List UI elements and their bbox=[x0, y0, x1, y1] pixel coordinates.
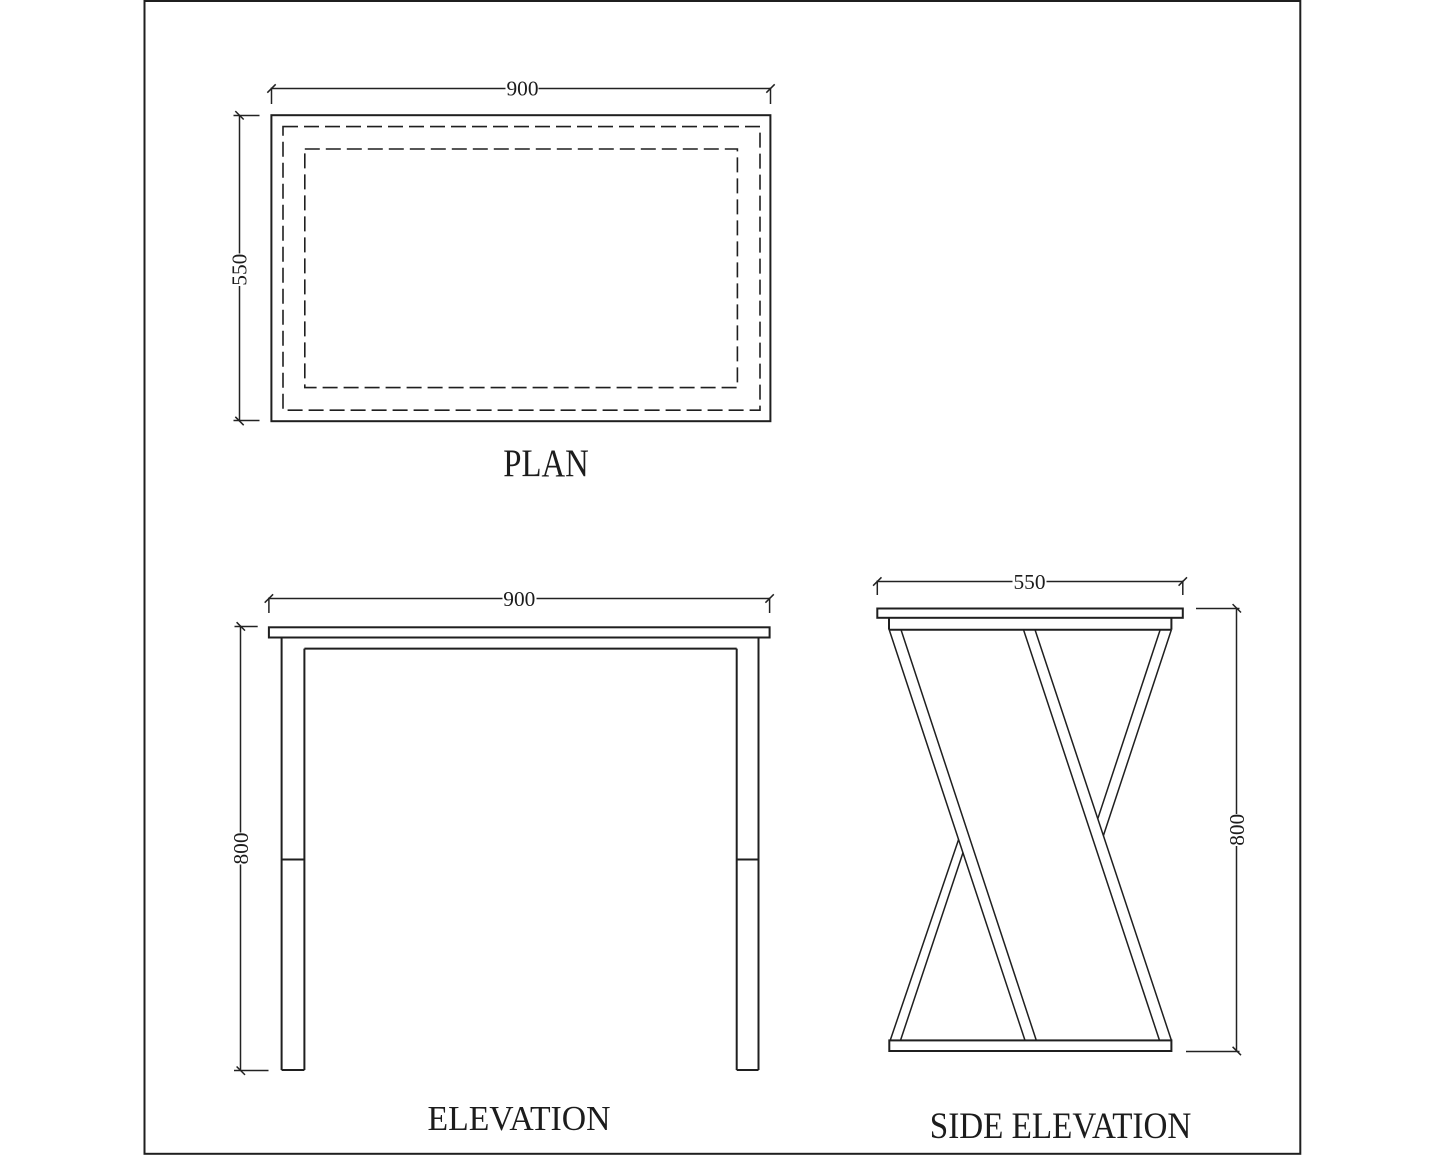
svg-text:ELEVATION: ELEVATION bbox=[428, 1099, 611, 1138]
svg-text:900: 900 bbox=[503, 587, 535, 611]
svg-text:550: 550 bbox=[228, 254, 252, 286]
svg-text:PLAN: PLAN bbox=[503, 442, 589, 485]
svg-text:900: 900 bbox=[507, 76, 539, 100]
svg-text:550: 550 bbox=[1014, 570, 1046, 594]
svg-text:SIDE ELEVATION: SIDE ELEVATION bbox=[930, 1106, 1192, 1147]
svg-text:800: 800 bbox=[229, 833, 253, 865]
svg-text:800: 800 bbox=[1225, 814, 1249, 846]
